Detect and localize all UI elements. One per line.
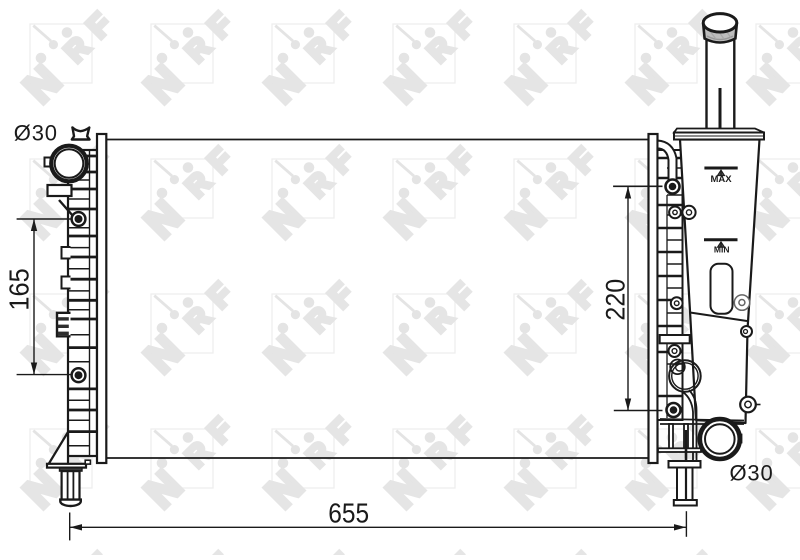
- svg-text:Ø30: Ø30: [14, 120, 58, 145]
- svg-text:165: 165: [3, 268, 35, 310]
- svg-text:Ø30: Ø30: [730, 461, 774, 486]
- svg-text:MIN: MIN: [714, 245, 730, 255]
- svg-text:MAX: MAX: [710, 174, 732, 185]
- svg-text:220: 220: [600, 279, 631, 321]
- svg-text:655: 655: [328, 497, 369, 529]
